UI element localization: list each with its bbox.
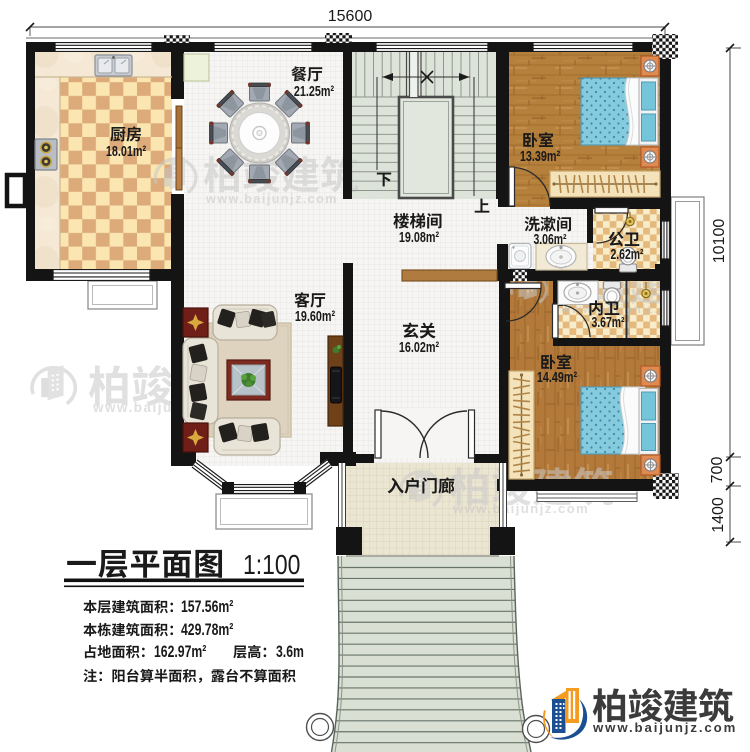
svg-text:16.02m²: 16.02m² bbox=[399, 338, 440, 355]
svg-text:3.06m²: 3.06m² bbox=[533, 231, 566, 247]
svg-text:10100: 10100 bbox=[711, 219, 728, 264]
svg-text:1:100: 1:100 bbox=[243, 550, 300, 581]
svg-text:14.49m²: 14.49m² bbox=[537, 368, 578, 385]
svg-text:2.62m²: 2.62m² bbox=[610, 246, 643, 262]
svg-text:21.25m²: 21.25m² bbox=[294, 82, 335, 99]
svg-text:157.56m²: 157.56m² bbox=[181, 598, 233, 616]
svg-text:3.67m²: 3.67m² bbox=[591, 314, 624, 330]
svg-text:19.60m²: 19.60m² bbox=[295, 307, 336, 324]
svg-text:3.6m: 3.6m bbox=[276, 643, 304, 661]
svg-text:15600: 15600 bbox=[328, 8, 373, 25]
svg-text:www.baijunjz.com: www.baijunjz.com bbox=[205, 192, 338, 206]
svg-text:18.01m²: 18.01m² bbox=[106, 142, 147, 159]
svg-text:162.97m²: 162.97m² bbox=[154, 643, 206, 661]
svg-text:13.39m²: 13.39m² bbox=[520, 147, 561, 164]
svg-text:19.08m²: 19.08m² bbox=[399, 228, 440, 245]
svg-text:www.baijunjz.com: www.baijunjz.com bbox=[592, 720, 737, 735]
svg-text:429.78m²: 429.78m² bbox=[181, 621, 233, 639]
svg-text:1400: 1400 bbox=[710, 497, 727, 533]
svg-text:www.baijunjz.com: www.baijunjz.com bbox=[452, 501, 589, 516]
svg-text:700: 700 bbox=[709, 457, 726, 484]
